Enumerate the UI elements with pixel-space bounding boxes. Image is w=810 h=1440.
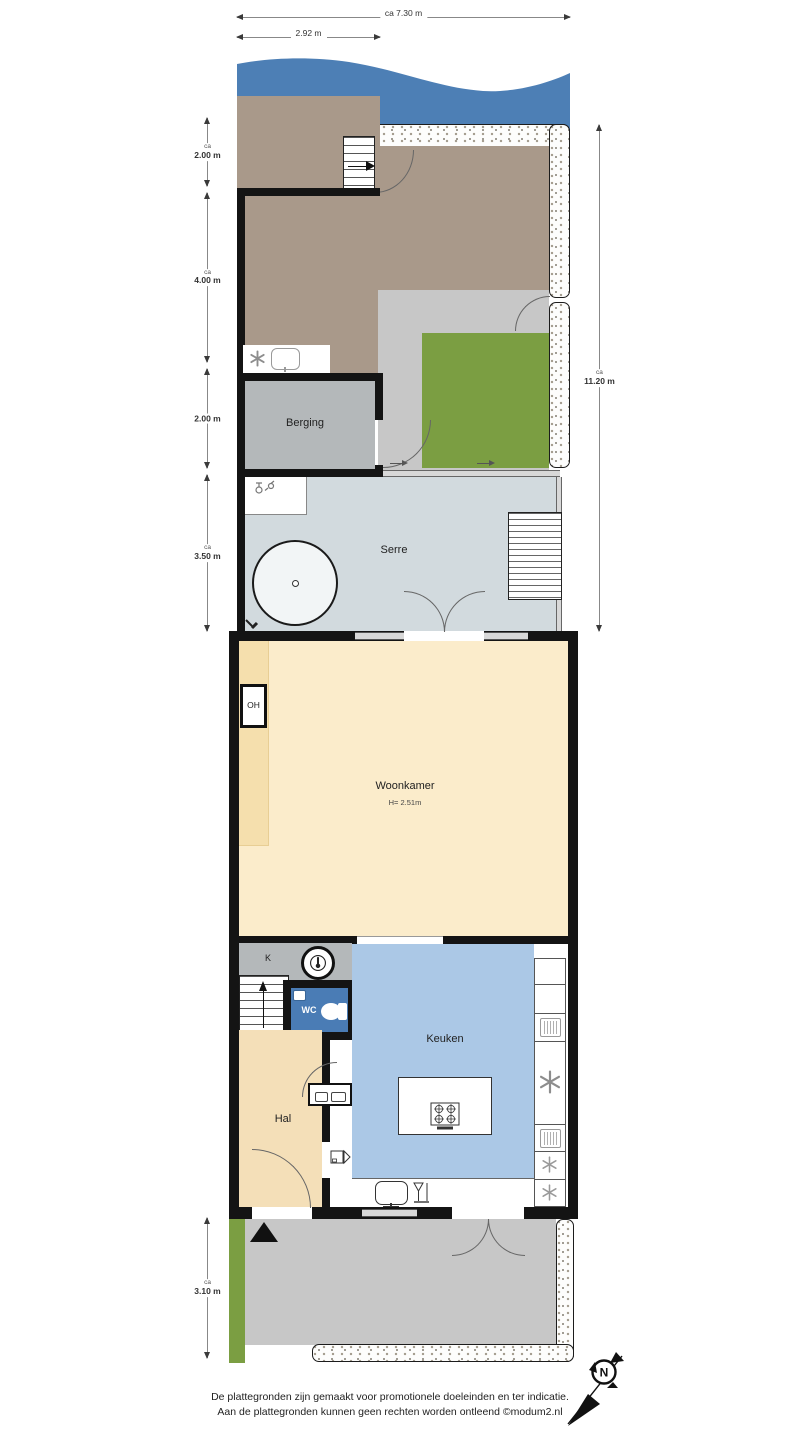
round-table-center-dot xyxy=(292,580,299,587)
window-vent-arrow-icon xyxy=(489,460,495,466)
snowflake-icon xyxy=(541,1156,558,1173)
window-vent-arrow-icon xyxy=(390,463,402,464)
window-vent-arrow-icon xyxy=(477,463,489,464)
oven-cabinet xyxy=(535,1125,565,1152)
berging-top-wall xyxy=(237,373,383,381)
floor-plan: Berging Serre OH Woonkamer H= 2.51m xyxy=(0,0,810,1440)
dimension-top-total: ca 7.30 m xyxy=(237,17,570,18)
oven-icon xyxy=(540,1018,561,1037)
snowflake-icon xyxy=(541,1184,558,1201)
freezer-cabinet xyxy=(535,1152,565,1180)
washing-machine-icon xyxy=(330,1148,352,1170)
front-green-strip xyxy=(229,1219,245,1363)
room-height-note: H= 2.51m xyxy=(365,798,445,807)
boiler xyxy=(301,946,335,980)
room-label-woonkamer: Woonkamer xyxy=(345,780,465,792)
room-label-closet: K xyxy=(258,953,278,963)
snowflake-icon xyxy=(538,1070,562,1094)
meter-icon xyxy=(315,1092,328,1102)
woonkamer-step xyxy=(239,641,269,846)
room-label-fireplace: OH xyxy=(241,700,266,710)
dimension-top-partial: 2.92 m xyxy=(237,37,380,38)
serre-door-opening xyxy=(404,631,484,641)
boiler-thermometer-icon xyxy=(309,954,327,972)
toilet-tank xyxy=(338,1003,347,1020)
front-window xyxy=(362,1209,417,1217)
dimension-left-1: ca2.00 m xyxy=(207,118,208,186)
flower-icon xyxy=(249,350,266,367)
disclaimer-line-1: De plattegronden zijn gemaakt voor promo… xyxy=(180,1390,600,1405)
compass-north-label: N xyxy=(600,1366,609,1380)
dimension-left-3: 2.00 m xyxy=(207,369,208,468)
meter-cupboard xyxy=(308,1083,352,1106)
fixture-icon xyxy=(412,1181,432,1205)
stairs-up-line xyxy=(263,990,264,1028)
wc-left-wall xyxy=(283,988,291,1032)
kitchen-doors-opening xyxy=(452,1207,524,1219)
room-label-serre: Serre xyxy=(354,544,434,556)
garden-left-wall xyxy=(237,188,245,641)
house-right-wall xyxy=(568,631,578,1219)
cabinet xyxy=(535,985,565,1014)
window-serre-right xyxy=(484,632,528,640)
cabinet xyxy=(535,959,565,985)
radiator xyxy=(508,512,562,600)
dimension-left-5: ca3.10 m xyxy=(207,1218,208,1358)
wc-top-wall xyxy=(283,980,356,988)
room-label-berging: Berging xyxy=(255,417,355,429)
freezer-cabinet xyxy=(535,1042,565,1125)
oven-cabinet xyxy=(535,1014,565,1042)
disclaimer-line-2: Aan de plattegronden kunnen geen rechten… xyxy=(180,1405,600,1420)
window-serre-left xyxy=(355,632,404,640)
garden-wall-right-lower xyxy=(549,302,570,468)
grass xyxy=(422,333,549,468)
wc-washbasin-icon xyxy=(293,990,306,1001)
berging-right-wall-upper xyxy=(375,373,383,420)
meter-icon xyxy=(331,1092,346,1102)
disclaimer: De plattegronden zijn gemaakt voor promo… xyxy=(180,1390,600,1419)
freezer-cabinet xyxy=(535,1180,565,1206)
hal-kitchen-wall-2 xyxy=(322,1106,330,1142)
room-keuken xyxy=(352,944,534,1178)
tap-icons xyxy=(253,480,281,496)
stairs-up-arrow-icon xyxy=(259,981,267,991)
tap-icon xyxy=(244,614,260,630)
room-label-hal: Hal xyxy=(253,1113,313,1125)
outdoor-counter xyxy=(243,345,330,373)
hal-kitchen-wall-3 xyxy=(322,1178,330,1207)
front-wall-right xyxy=(556,1219,574,1362)
front-wall-bottom xyxy=(312,1344,574,1362)
serre-glass-top xyxy=(383,470,560,477)
kitchen-counter xyxy=(352,1178,534,1207)
washer-niche xyxy=(330,1142,352,1178)
terrace-fence-wall xyxy=(237,188,380,196)
kitchen-island xyxy=(398,1077,492,1135)
stairs-direction-arrow-icon xyxy=(366,161,375,171)
house-left-wall xyxy=(229,631,239,1219)
front-door-opening xyxy=(252,1207,312,1219)
appliance-column xyxy=(534,958,566,1207)
berging-bottom-wall xyxy=(237,469,383,477)
dimension-right-total: ca11.20 m xyxy=(599,125,600,631)
dimension-left-2: ca4.00 m xyxy=(207,193,208,362)
kitchen-sink-icon xyxy=(375,1181,408,1205)
oven-icon xyxy=(540,1129,561,1148)
room-label-keuken: Keuken xyxy=(395,1033,495,1045)
kitchen-door-opening xyxy=(357,936,443,944)
serre-pantry xyxy=(245,477,307,515)
dimension-left-4: ca3.50 m xyxy=(207,475,208,631)
window-vent-arrow-icon xyxy=(402,460,408,466)
gas-hob-icon xyxy=(430,1102,460,1130)
garden-wall-right-upper xyxy=(549,124,570,298)
entrance-arrow-icon xyxy=(250,1222,278,1242)
room-label-wc: WC xyxy=(294,1005,324,1015)
